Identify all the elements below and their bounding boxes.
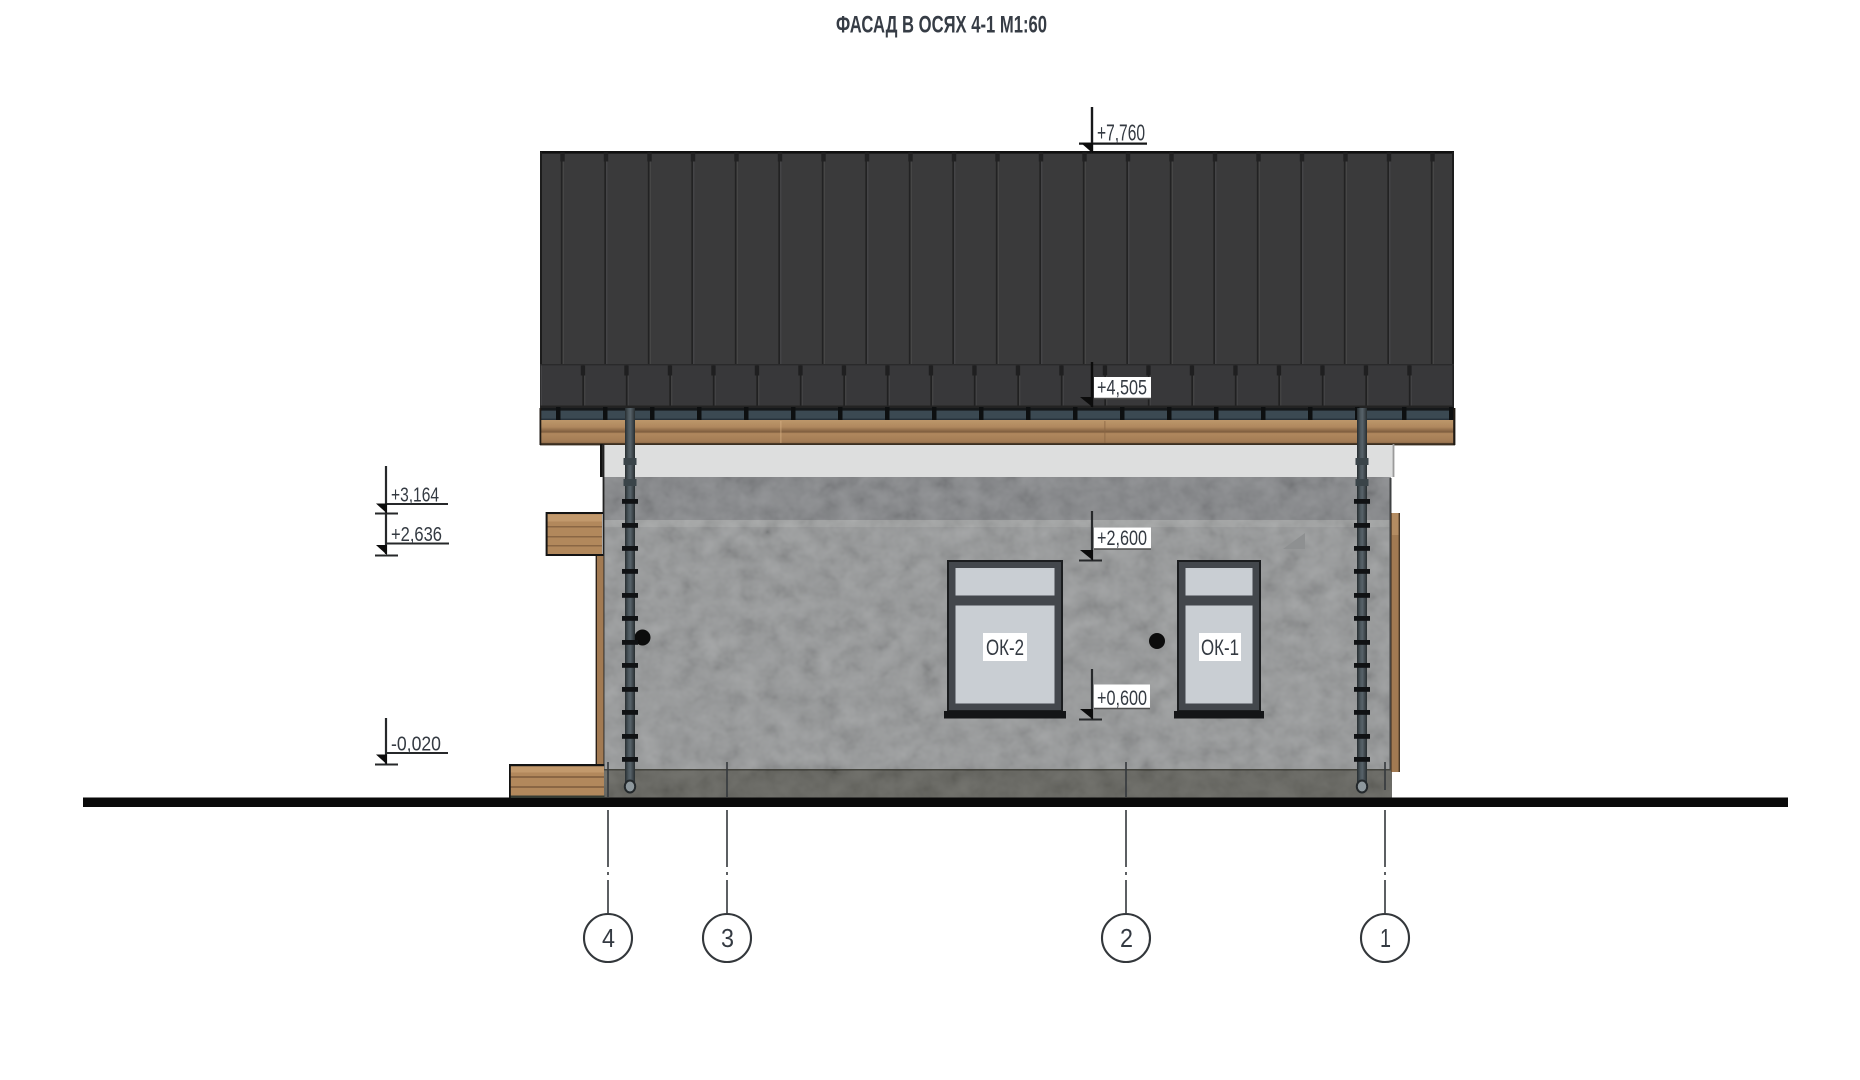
svg-text:+0,600: +0,600 — [1097, 687, 1147, 710]
svg-text:-0,020: -0,020 — [391, 734, 441, 756]
svg-text:1: 1 — [1380, 923, 1391, 953]
svg-text:ОК-2: ОК-2 — [986, 635, 1024, 660]
svg-text:ОК-1: ОК-1 — [1201, 635, 1239, 660]
svg-text:+7,760: +7,760 — [1097, 120, 1145, 146]
svg-text:4: 4 — [602, 923, 615, 953]
svg-text:ФАСАД В ОСЯХ 4-1 М1:60: ФАСАД В ОСЯХ 4-1 М1:60 — [836, 12, 1047, 39]
svg-text:+2,636: +2,636 — [391, 524, 442, 546]
svg-text:3: 3 — [721, 923, 734, 953]
svg-text:2: 2 — [1120, 923, 1133, 953]
svg-text:+4,505: +4,505 — [1097, 377, 1147, 400]
svg-text:+3,164: +3,164 — [391, 485, 439, 507]
svg-text:+2,600: +2,600 — [1097, 527, 1147, 550]
